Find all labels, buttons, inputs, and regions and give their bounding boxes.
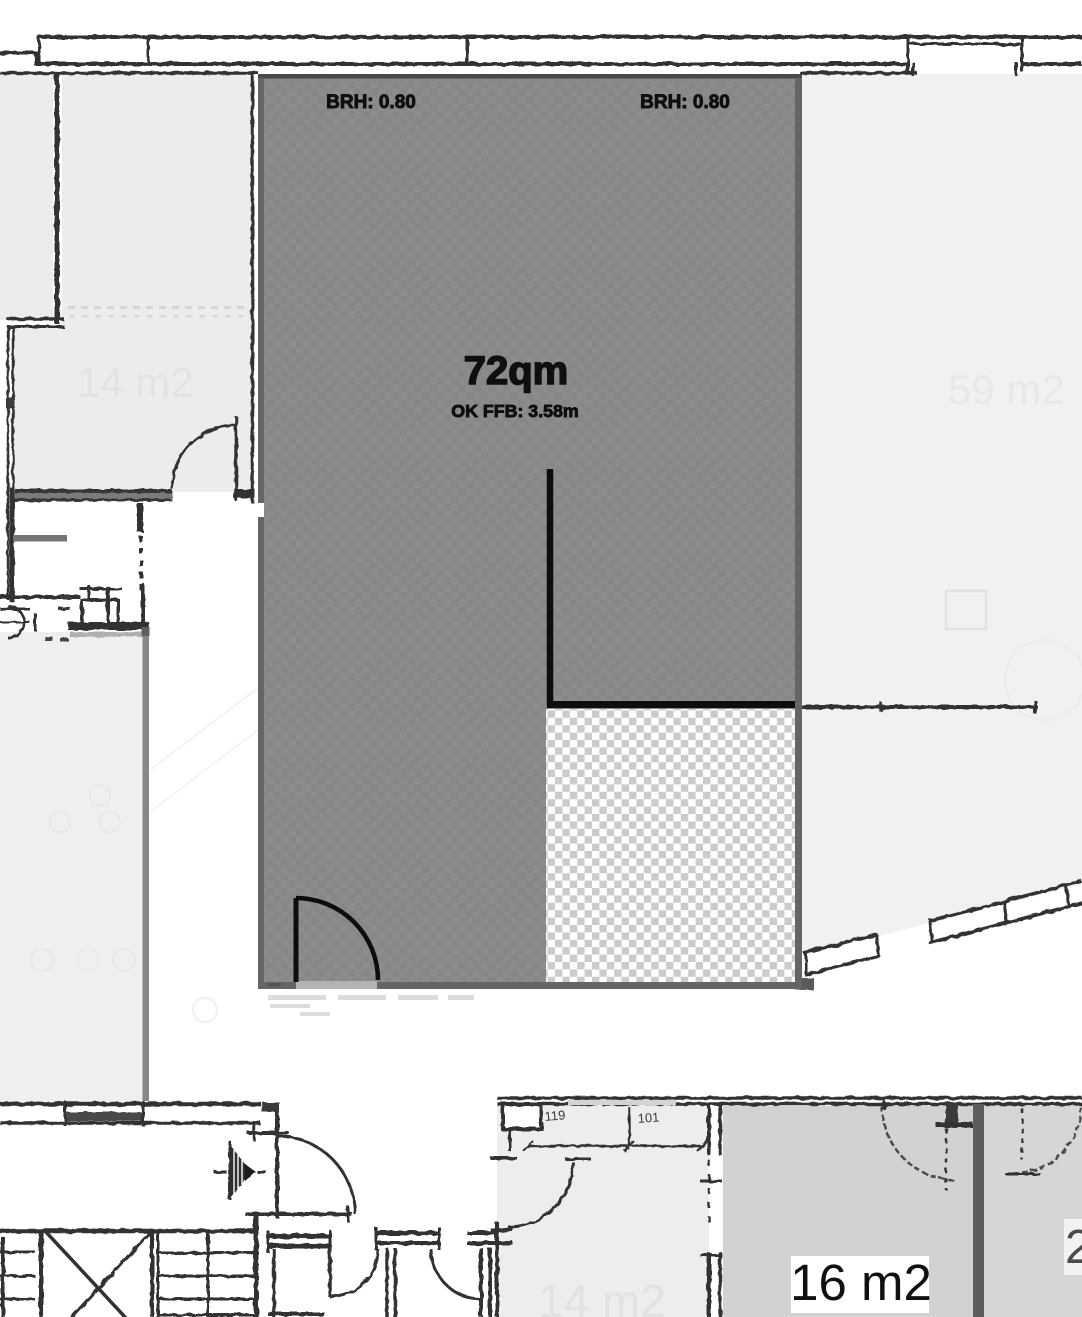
svg-text:59 m2: 59 m2 (948, 366, 1065, 413)
svg-text:14 m2: 14 m2 (538, 1275, 666, 1317)
svg-text:BRH: 0.80: BRH: 0.80 (640, 92, 730, 113)
svg-text:14 m2: 14 m2 (77, 359, 194, 406)
svg-text:BRH: 0.80: BRH: 0.80 (326, 92, 416, 113)
svg-text:72qm: 72qm (464, 349, 569, 393)
svg-text:16 m2: 16 m2 (790, 1254, 932, 1311)
svg-text:101: 101 (637, 1110, 660, 1126)
svg-text:119: 119 (544, 1107, 566, 1124)
svg-text:2: 2 (1065, 1221, 1082, 1274)
svg-text:OK FFB: 3.58m: OK FFB: 3.58m (451, 401, 578, 421)
